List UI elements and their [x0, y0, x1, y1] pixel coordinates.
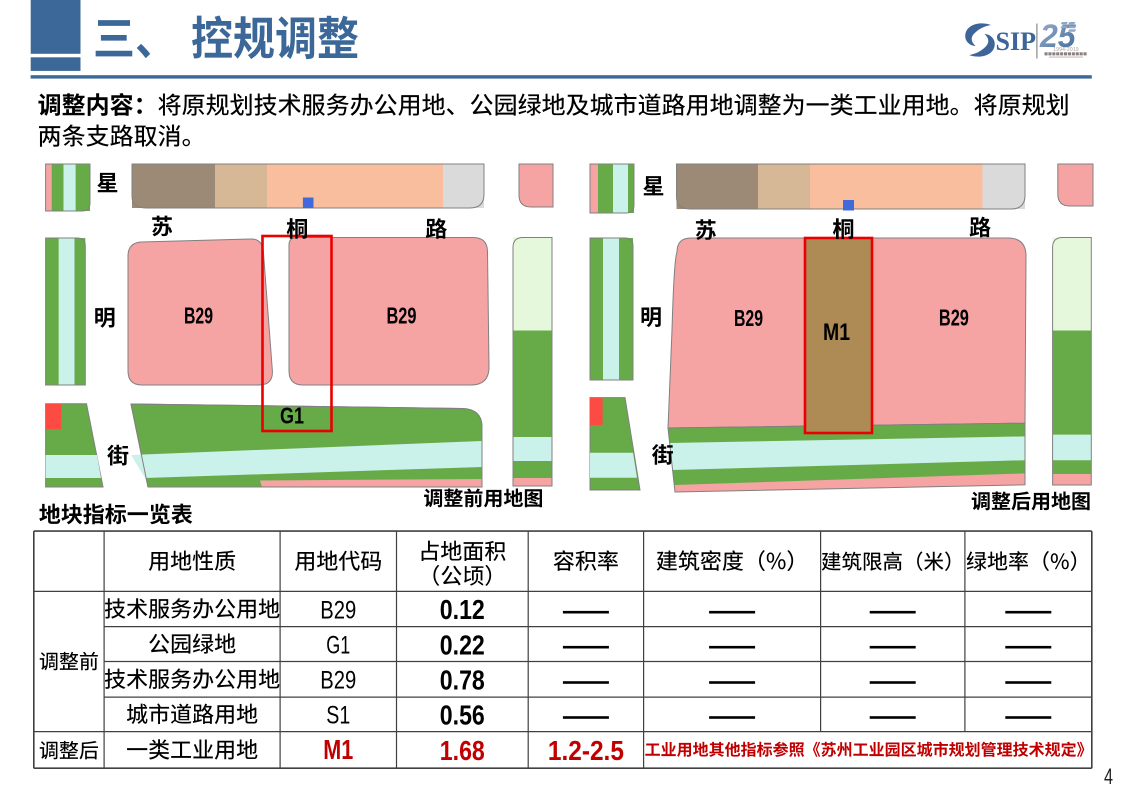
svg-text:G1: G1: [280, 403, 304, 429]
svg-text:B29: B29: [320, 667, 356, 695]
svg-text:4: 4: [1104, 764, 1113, 789]
svg-text:M1: M1: [323, 734, 353, 765]
svg-text:B29: B29: [320, 596, 356, 624]
svg-text:B29: B29: [939, 304, 969, 330]
svg-text:0.22: 0.22: [440, 629, 485, 660]
svg-text:1.68: 1.68: [440, 735, 485, 766]
svg-text:0.12: 0.12: [440, 594, 485, 625]
svg-text:0.56: 0.56: [440, 700, 485, 731]
svg-text:0.78: 0.78: [440, 665, 485, 696]
svg-text:S1: S1: [326, 702, 350, 730]
svg-text:M1: M1: [823, 319, 850, 346]
svg-text:B29: B29: [184, 303, 213, 329]
svg-text:1.2-2.5: 1.2-2.5: [548, 735, 624, 766]
svg-text:B29: B29: [734, 305, 763, 331]
svg-text:B29: B29: [387, 303, 417, 329]
svg-text:SIP: SIP: [996, 27, 1037, 56]
svg-text:G1: G1: [326, 631, 350, 659]
